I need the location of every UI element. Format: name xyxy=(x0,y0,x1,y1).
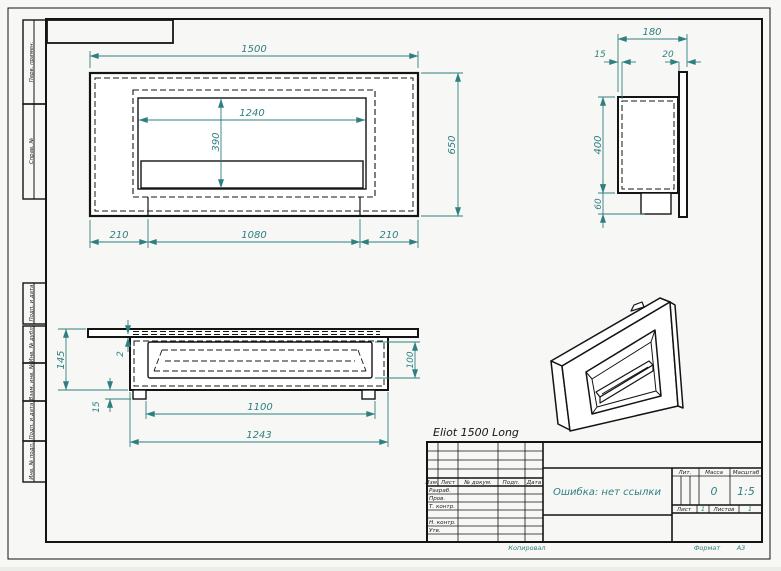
margin-label-podp-data-1: Подп. и дата xyxy=(29,285,35,322)
row-prov: Пров. xyxy=(429,496,445,502)
dim-plan-plate-thickness: 2 xyxy=(116,351,126,357)
plan-foot-left xyxy=(133,390,146,399)
plan-top-plate xyxy=(88,329,418,337)
dim-front-niche-width: 1080 xyxy=(241,230,266,241)
sheet-value: 1 xyxy=(701,505,705,513)
dim-front-right-offset: 210 xyxy=(379,230,398,241)
dim-plan-total-height: 145 xyxy=(56,350,67,369)
dim-front-opening-width: 1240 xyxy=(239,108,264,119)
row-razrab: Разраб. xyxy=(429,488,451,494)
col-list: Лист xyxy=(440,480,456,486)
mass-label: Масса xyxy=(705,470,723,476)
dim-side-body-height: 400 xyxy=(593,135,604,154)
scale-value: 1:5 xyxy=(737,485,755,498)
doc-title: Ошибка: нет ссылки xyxy=(553,486,661,498)
side-body xyxy=(618,97,678,193)
format-label: Формат xyxy=(694,544,721,552)
col-data: Дата xyxy=(526,480,542,486)
dim-front-opening-height: 390 xyxy=(211,132,222,151)
margin-label-inv-podl: Инв. № подл. xyxy=(29,442,35,479)
sheets-label: Листов xyxy=(713,507,735,513)
margin-label-perv-primen: Перв. примен. xyxy=(29,42,35,82)
dim-front-left-offset: 210 xyxy=(109,230,128,241)
lit-label: Лит. xyxy=(678,470,692,476)
sheet-label: Лист xyxy=(676,507,692,513)
plan-body xyxy=(130,337,388,390)
kopiroval-label: Копировал xyxy=(508,544,545,552)
dim-side-burner-height: 60 xyxy=(594,198,604,210)
sheets-value: 1 xyxy=(748,505,752,513)
dim-side-gap-right: 20 xyxy=(662,50,674,60)
dim-side-depth: 180 xyxy=(642,27,661,38)
col-izm: Изм. xyxy=(425,480,438,486)
mass-value: 0 xyxy=(711,485,718,498)
row-nkontr: Н. контр. xyxy=(429,520,456,526)
dim-front-height: 650 xyxy=(447,135,458,154)
margin-label-inv-dubl: Инв. № дубл. xyxy=(29,326,35,363)
front-outer-contour xyxy=(90,73,418,216)
margin-label-sprav-no: Справ. № xyxy=(29,137,35,164)
side-burner-box xyxy=(641,193,671,214)
format-value: A3 xyxy=(736,544,746,552)
col-doc: № докум. xyxy=(463,480,492,486)
cad-drawing-svg: Перв. примен. Справ. № Подп. и дата Инв.… xyxy=(0,0,781,567)
dim-front-width: 1500 xyxy=(241,44,266,55)
scale-label: Масштаб xyxy=(733,470,760,476)
drawing-sheet: Перв. примен. Справ. № Подп. и дата Инв.… xyxy=(0,0,781,567)
col-podp: Подп. xyxy=(503,480,520,486)
dim-side-gap-left: 15 xyxy=(594,50,606,60)
dim-plan-foot-height: 15 xyxy=(92,401,102,413)
side-front-plate xyxy=(679,72,687,217)
dim-plan-feet-span: 1100 xyxy=(247,402,272,413)
row-tkontr: Т. контр. xyxy=(429,504,455,510)
dim-plan-tray-depth: 100 xyxy=(406,351,416,368)
product-name: Eliot 1500 Long xyxy=(433,426,519,439)
margin-label-podp-data-2: Подп. и дата xyxy=(29,403,35,440)
dim-plan-body-width: 1243 xyxy=(246,430,271,441)
row-utv: Утв. xyxy=(429,528,441,534)
margin-label-vzam-inv: Взам. инв. № xyxy=(29,363,35,400)
plan-foot-right xyxy=(362,390,375,399)
